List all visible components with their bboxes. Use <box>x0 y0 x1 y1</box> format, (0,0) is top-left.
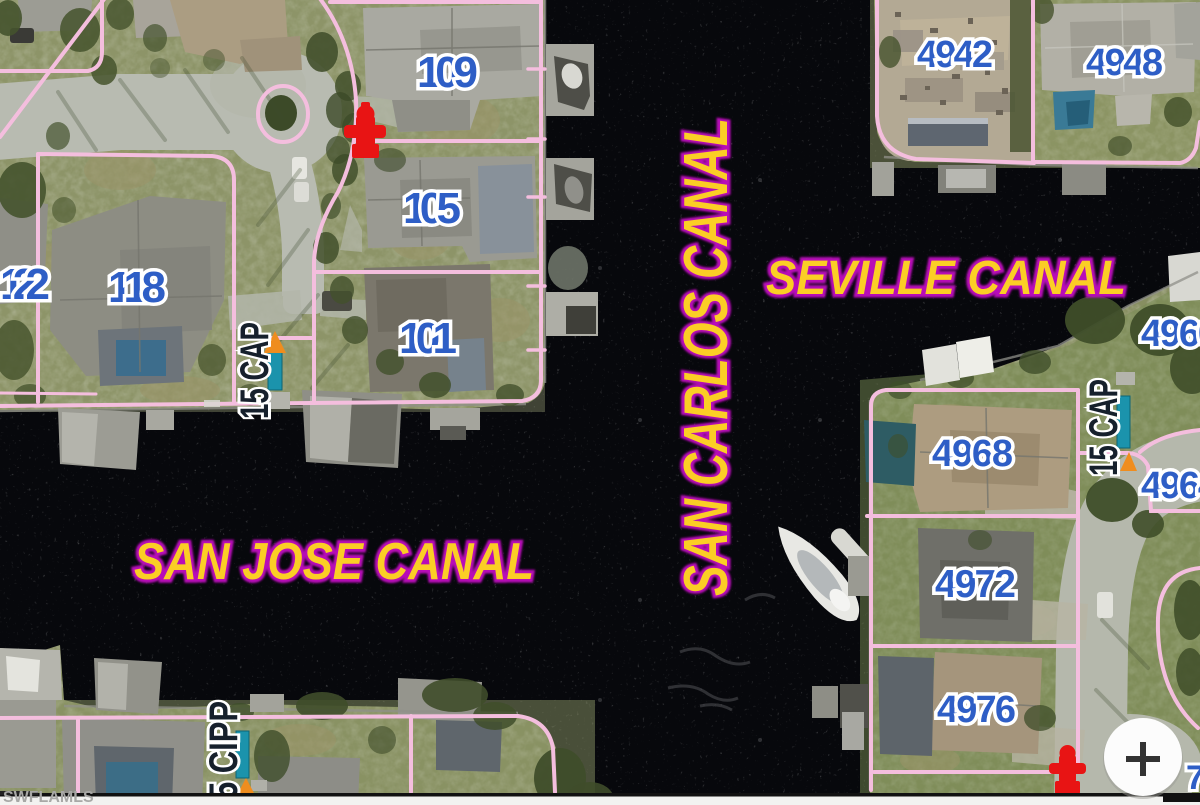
svg-text:109: 109 <box>417 48 478 97</box>
svg-text:SAN CARLOS CANAL: SAN CARLOS CANAL <box>672 118 741 596</box>
svg-text:5 CIPP: 5 CIPP <box>202 701 246 799</box>
svg-text:15 CAP: 15 CAP <box>233 322 277 419</box>
svg-text:SAN JOSE CANAL: SAN JOSE CANAL <box>134 533 534 591</box>
svg-text:75: 75 <box>1186 759 1200 797</box>
svg-text:15 CAP: 15 CAP <box>1082 379 1126 476</box>
svg-text:4964: 4964 <box>1141 465 1200 507</box>
svg-text:4942: 4942 <box>917 34 993 76</box>
svg-text:105: 105 <box>403 184 461 233</box>
svg-text:122: 122 <box>0 260 50 309</box>
svg-text:4968: 4968 <box>932 433 1013 475</box>
svg-text:4948: 4948 <box>1086 42 1163 84</box>
svg-text:4976: 4976 <box>937 689 1016 731</box>
svg-text:101: 101 <box>399 314 457 363</box>
svg-text:118: 118 <box>108 263 166 312</box>
svg-text:4972: 4972 <box>935 563 1016 606</box>
svg-text:SWFLAMLS: SWFLAMLS <box>3 789 94 805</box>
svg-text:4960: 4960 <box>1141 313 1200 355</box>
svg-text:SEVILLE CANAL: SEVILLE CANAL <box>766 252 1126 305</box>
